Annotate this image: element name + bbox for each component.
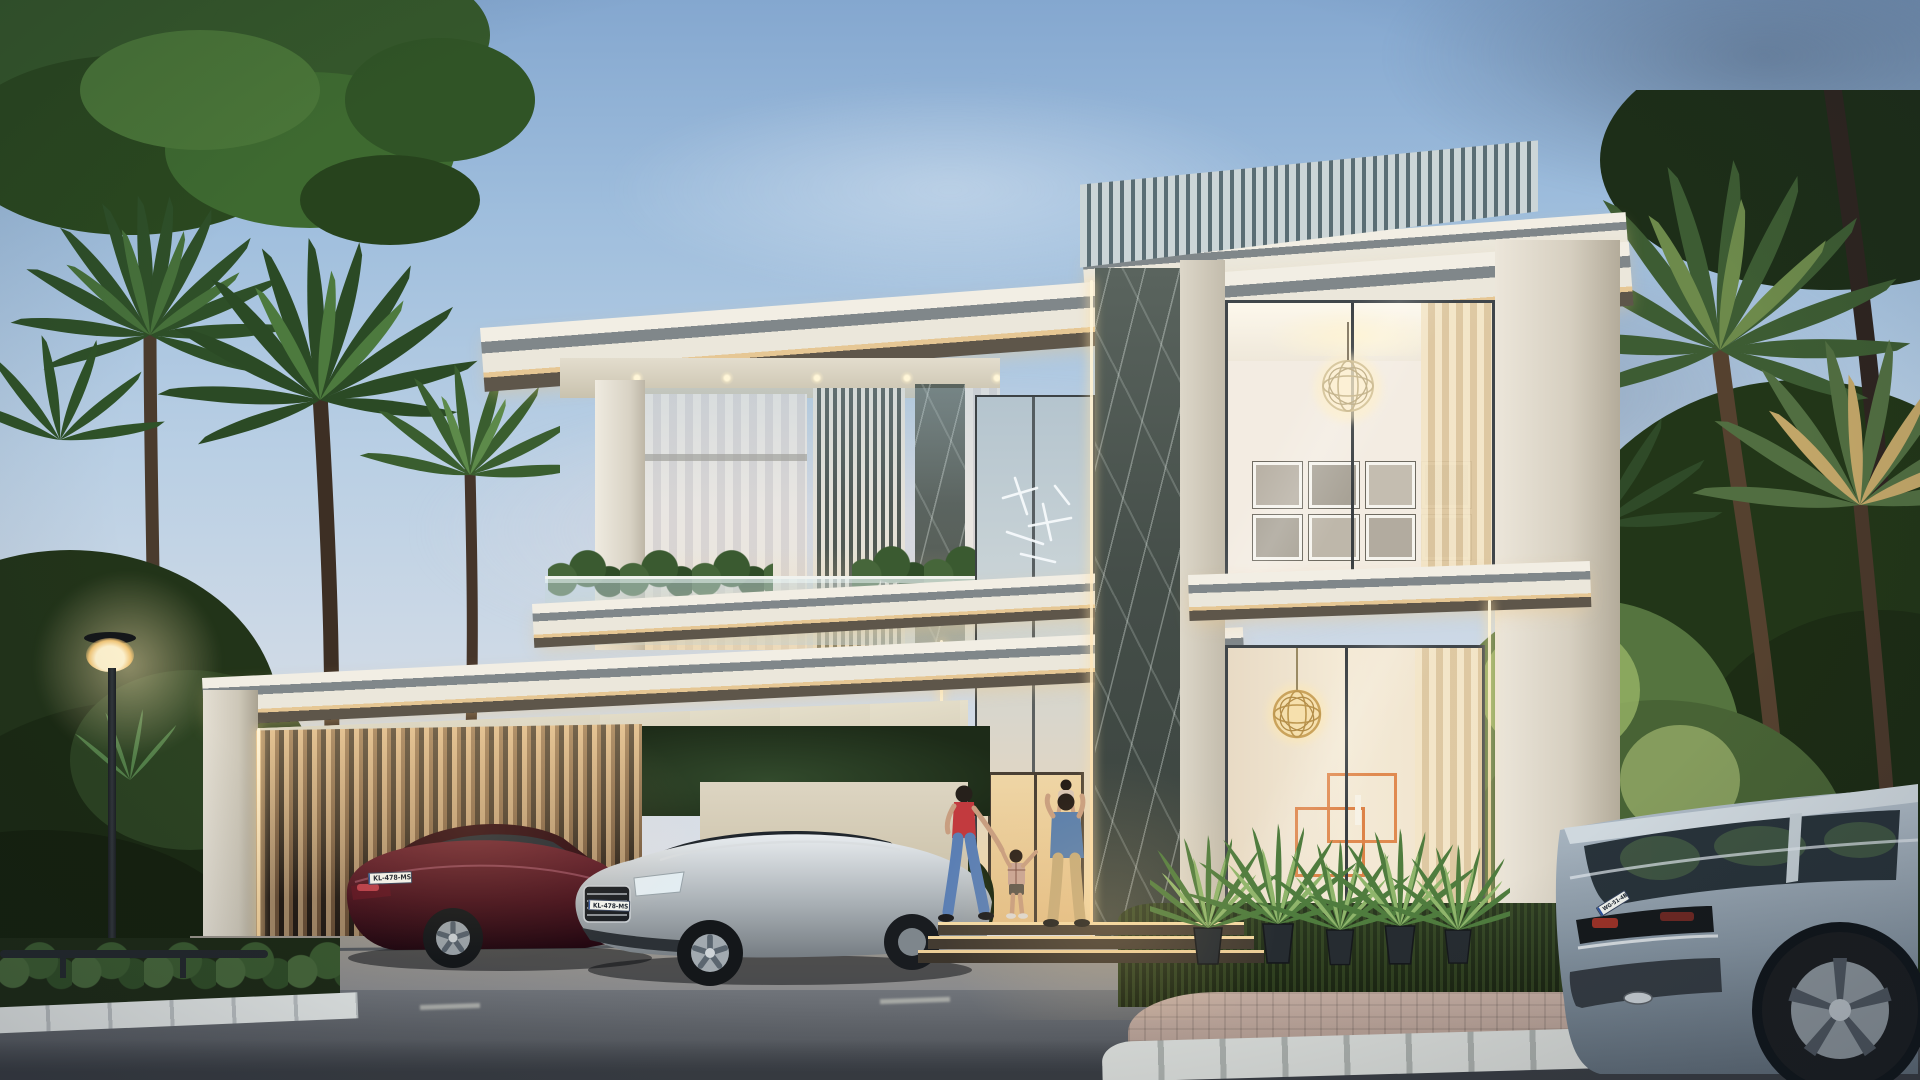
dusk-vignette xyxy=(0,0,1920,1080)
villa-exterior-render: KL-478-MS KL-478-MS xyxy=(0,0,1920,1080)
